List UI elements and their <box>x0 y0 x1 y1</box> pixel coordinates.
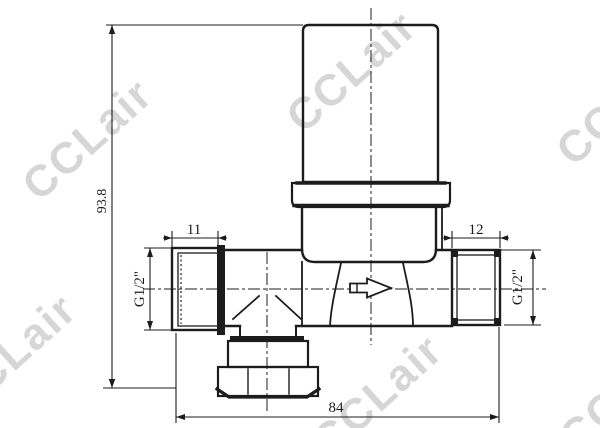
valve-bonnet <box>302 207 436 262</box>
dim-arrowhead <box>490 414 499 420</box>
dim-arrowhead <box>444 235 452 241</box>
hex-bottom-chamfer <box>217 389 319 397</box>
outlet-collar <box>228 341 308 367</box>
right-port-inner <box>457 255 495 320</box>
dimension-height: 93.8 <box>95 25 303 388</box>
dimension-left-depth: 11 <box>163 222 227 247</box>
dim-arrowhead <box>147 321 153 330</box>
dim-arrowhead <box>109 379 115 388</box>
centerlines <box>143 8 546 414</box>
technical-drawing-canvas: CCLair CCLair CCLair CCLair CCLair CCLai… <box>0 0 600 428</box>
seat-diagonal-left <box>233 296 259 319</box>
right-port-corner <box>494 251 500 257</box>
dim-arrowhead <box>530 250 536 259</box>
dim-arrowhead <box>147 248 153 257</box>
dim-arrowhead <box>176 414 185 420</box>
overall-width-label: 84 <box>329 400 345 416</box>
height-dim-label: 93.8 <box>95 189 110 214</box>
dim-arrowhead <box>164 235 172 241</box>
bottom-outlet <box>217 326 319 397</box>
waterway-curve-left <box>330 263 341 326</box>
outlet-hex-nut <box>218 367 318 396</box>
left-depth-label: 11 <box>187 222 201 238</box>
seat-diagonal-right <box>276 296 301 319</box>
left-thread-label: G1/2" <box>132 271 148 307</box>
flow-arrow-icon <box>350 279 391 298</box>
dimension-overall-width: 84 <box>176 327 499 423</box>
flow-arrow-outline <box>350 279 391 298</box>
waterway-curve-right <box>403 263 413 326</box>
dimension-right-depth: 12 <box>443 222 509 248</box>
right-port-outline <box>452 250 500 325</box>
right-port-corner <box>494 318 500 324</box>
right-port <box>452 250 500 325</box>
dim-arrowhead <box>530 316 536 325</box>
dim-arrowhead <box>500 235 508 241</box>
dim-arrowhead <box>109 25 115 34</box>
valve-body <box>217 208 452 335</box>
right-depth-label: 12 <box>469 222 484 238</box>
bonnet-outline <box>302 207 436 262</box>
right-thread-label: G1/2" <box>510 269 526 305</box>
dim-arrowhead <box>218 235 226 241</box>
right-port-corner <box>452 318 458 324</box>
right-port-corner <box>452 251 458 257</box>
valve-technical-drawing: 93.8 11 12 G1/2" <box>0 0 600 428</box>
